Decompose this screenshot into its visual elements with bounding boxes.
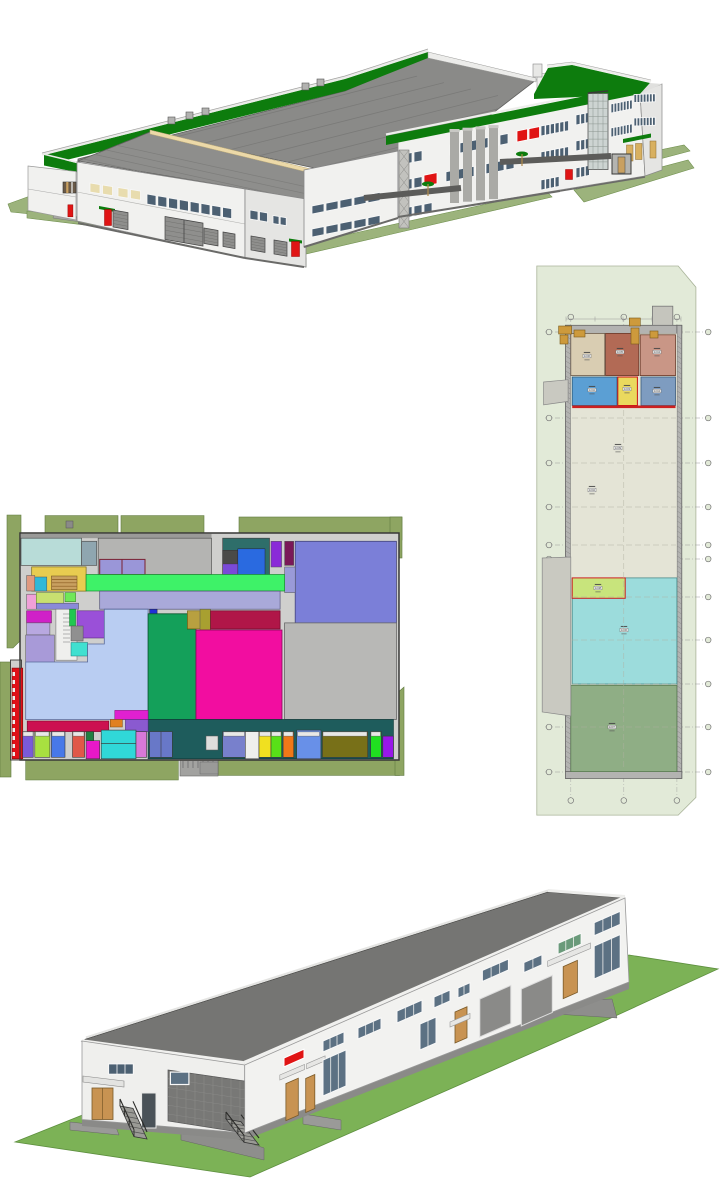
svg-text:1006: 1006 [584,354,591,358]
svg-text:1009: 1009 [615,446,622,450]
svg-text:1004: 1004 [654,350,661,354]
svg-text:1002: 1002 [589,388,596,392]
svg-text:1008: 1008 [595,586,602,590]
svg-text:1004: 1004 [654,389,661,393]
svg-text:1005: 1005 [617,350,624,354]
svg-text:1003: 1003 [624,387,631,391]
svg-text:1002: 1002 [589,488,596,492]
svg-text:1006: 1006 [621,628,628,632]
